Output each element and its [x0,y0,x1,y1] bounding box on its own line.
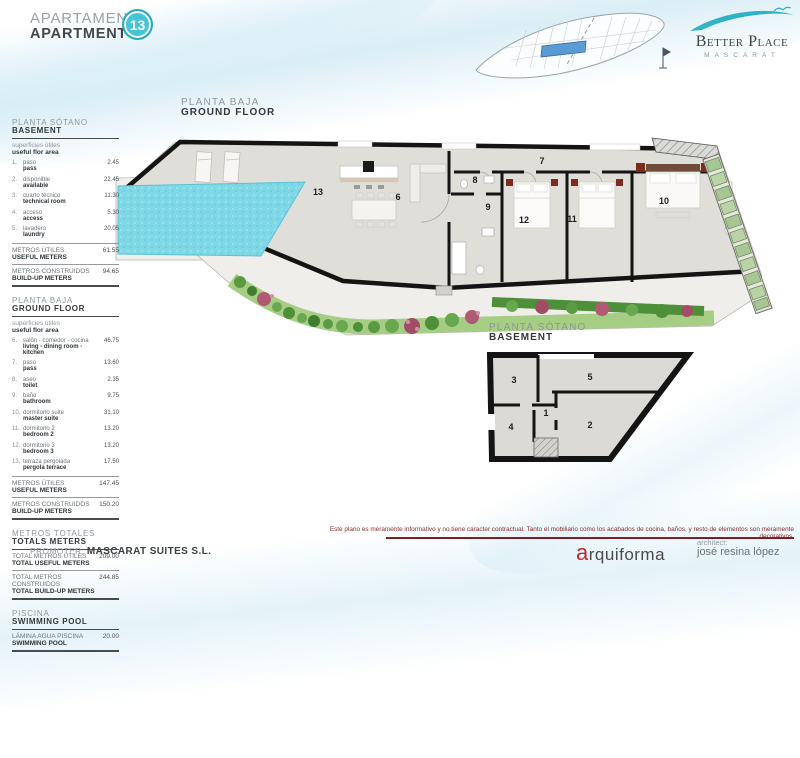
basement-window [538,354,594,359]
swoosh-shape [690,11,794,31]
room-label-bedroom2: 11 [567,214,577,224]
basement-areas-section: PLANTA SÓTANO BASEMENT superficies útile… [12,118,119,287]
brand-subname: MASCARAT [686,52,798,59]
basement-sec-title-en: BASEMENT [12,126,119,135]
areas-sidebar: PLANTA SÓTANO BASEMENT superficies útile… [12,118,119,661]
table-row: 8. aseotoilet 2.35 [12,377,119,389]
table-row: 3. cuarto técnicotechnical room 11.30 [12,193,119,205]
useful-area-label-es: superficies útiles [12,320,119,327]
totals-title-en: TOTALS METERS [12,537,119,546]
promoter-name: MASCARAT SUITES S.L. [87,546,211,557]
room-label-bathroom: 9 [485,202,490,212]
table-row: 12. dormitorio 3bedroom 3 13.20 [12,443,119,455]
room-label-access: 4 [508,422,513,432]
pool-water-area: LÁMINA AGUA PISCINASWIMMING POOL 20.00 [12,633,119,647]
room-label-available: 2 [587,420,592,430]
ground-useful-meters: METROS ÚTILESUSEFUL METERS 147.45 [12,480,119,494]
table-row: 2. disponibleavailable 22.45 [12,177,119,189]
bird-icon [774,7,791,11]
pool-section: PISCINA SWIMMING POOL LÁMINA AGUA PISCIN… [12,609,119,652]
ground-title-en: GROUND FLOOR [181,107,275,118]
ground-built-meters: METROS CONSTRUIDOSBUILD-UP METERS 150.20 [12,501,119,515]
brand-name: Better Place [686,33,798,51]
room-label-technical: 3 [511,375,516,385]
room-label-bedroom3: 12 [519,215,529,225]
room-label-pergola-terrace: 13 [313,187,323,197]
table-row: 6. salón - comedor - cocinaliving - dini… [12,338,119,356]
basement-plan-title: PLANTA SÓTANO BASEMENT [489,322,586,343]
total-built-meters: TOTAL METROS CONSTRUIDOSTOTAL BUILD-UP M… [12,574,119,595]
basement-useful-meters: METROS ÚTILESUSEFUL METERS 61.55 [12,247,119,261]
table-row: 5. lavaderolaundry 20.05 [12,226,119,238]
basement-built-meters: METROS CONSTRUIDOSBUILD-UP METERS 94.65 [12,268,119,282]
room-label-laundry: 5 [587,372,592,382]
ground-floor-plan-title: PLANTA BAJA GROUND FLOOR [181,97,275,118]
table-row: 1. pasopass 2.45 [12,160,119,172]
room-label-hall: 7 [539,156,544,166]
useful-area-label-en: useful flor area [12,327,119,334]
room-label-master-suite: 10 [659,196,669,206]
table-row: 11. dormitorio 2bedroom 2 13.20 [12,426,119,438]
room-label-living: 6 [395,192,400,202]
architect: architect: josé resina lópez [697,538,780,558]
basement-plan: 3 5 1 4 2 [478,350,743,470]
useful-area-label-en: useful flor area [12,149,119,156]
basement-outline [490,355,688,459]
pool-title-en: SWIMMING POOL [12,617,119,626]
table-row: 13. terraza pergoladapergola terrace 17.… [12,459,119,471]
table-row: 7. pasopass 13.60 [12,360,119,372]
basement-entry-door [487,414,495,430]
site-plan [466,8,678,82]
totals-section: METROS TOTALES TOTALS METERS TOTAL METRO… [12,529,119,600]
promoter-label: PROMOTER: [30,546,84,556]
ground-areas-section: PLANTA BAJA GROUND FLOOR superficies úti… [12,296,119,520]
promoter: PROMOTER: MASCARAT SUITES S.L. [30,546,211,557]
ground-floor-plan: 13 6 7 8 9 12 11 10 [112,130,797,345]
room-label-pass: 1 [543,408,548,418]
room-label-toilet: 8 [472,175,477,185]
entrance-steps [436,286,452,295]
apartment-number-badge: 13 [122,9,153,40]
brand-logo: Better Place MASCARAT [686,4,798,59]
architect-name: josé resina lópez [697,546,780,558]
compass-icon [659,48,670,68]
useful-area-label-es: superficies útiles [12,142,119,149]
logo-swoosh [686,4,798,34]
basement-stairs [534,438,558,457]
studio-logo: arquiforma [576,540,665,566]
ground-sec-title-en: GROUND FLOOR [12,304,119,313]
table-row: 9. bañobathroom 9.75 [12,393,119,405]
table-row: 10. dormitorio suitemaster suite 31.10 [12,410,119,422]
table-row: 4. accesoaccess 5.30 [12,210,119,222]
basement-title-en: BASEMENT [489,332,586,343]
